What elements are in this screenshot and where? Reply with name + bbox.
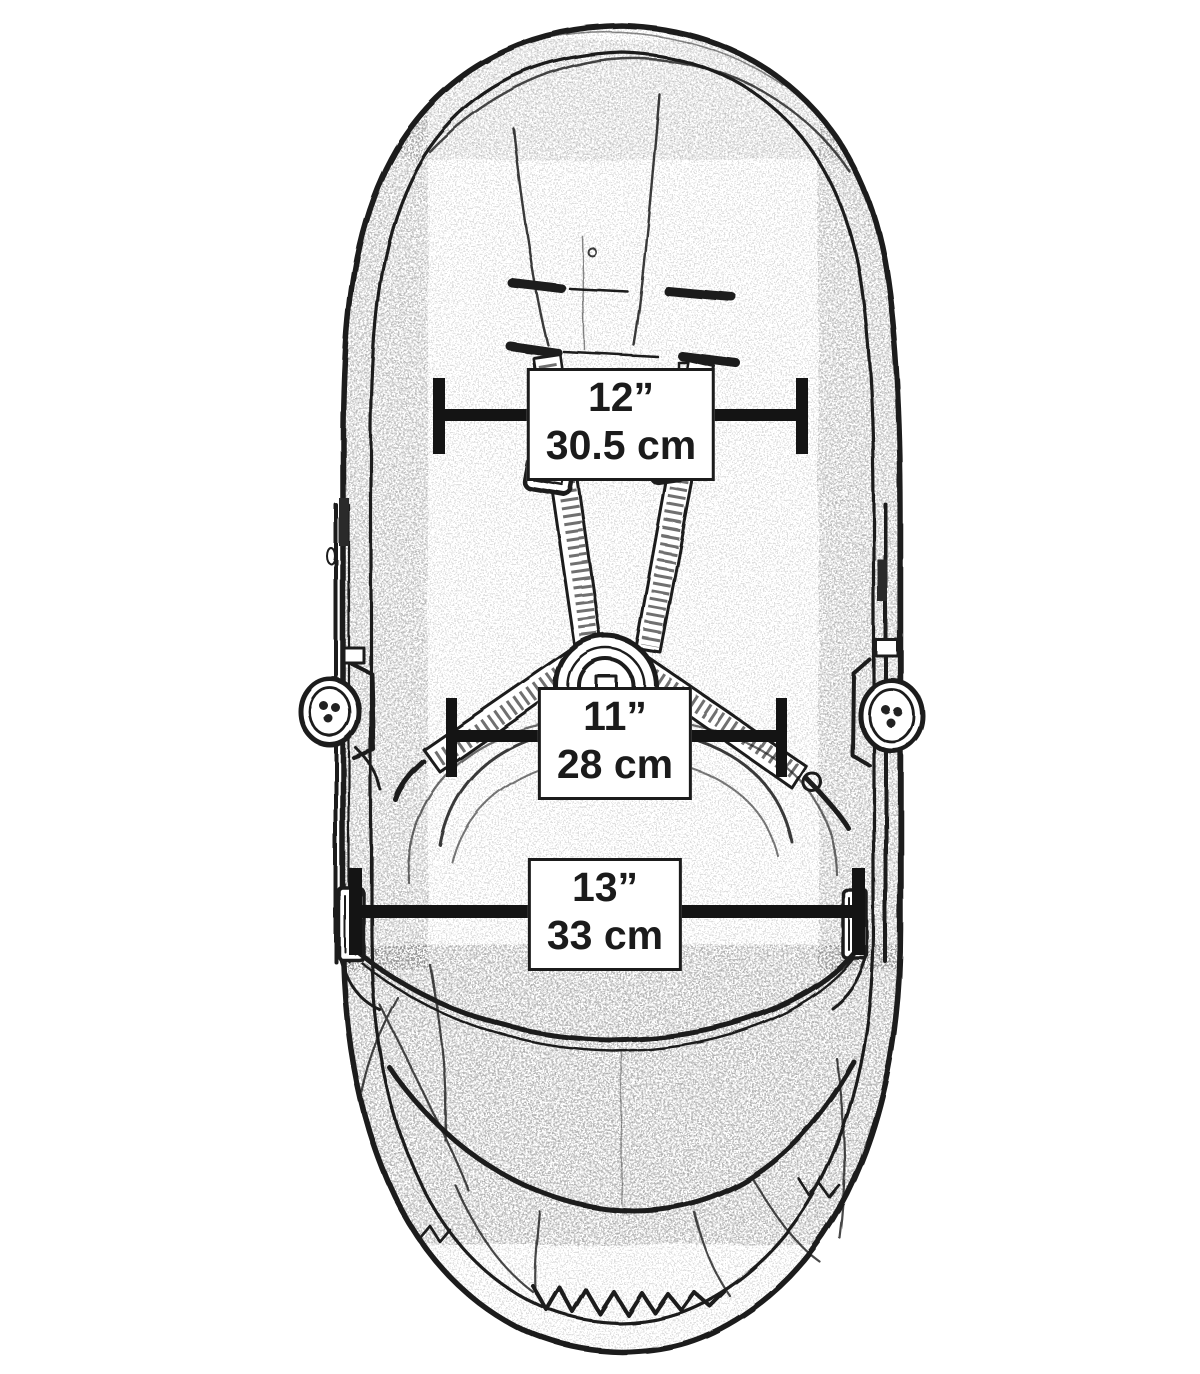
dimension-top-inches: 12”: [588, 374, 654, 422]
stroller-seat-dimension-diagram: 12” 30.5 cm 11” 28 cm 13” 33 cm: [0, 0, 1200, 1374]
dimension-middle-endcap-right: [776, 698, 787, 777]
dimension-bottom-label-box: 13” 33 cm: [528, 858, 682, 971]
dimension-bottom-inches: 13”: [572, 864, 638, 912]
dimension-bottom-endcap-right: [852, 868, 865, 955]
dimension-top-label-box: 12” 30.5 cm: [527, 368, 715, 481]
dimension-bottom-metric: 33 cm: [547, 912, 663, 960]
dimension-top-endcap-right: [796, 378, 808, 454]
dimension-middle-inches: 11”: [583, 693, 647, 741]
dimension-middle-label-box: 11” 28 cm: [538, 687, 692, 800]
dimension-top-metric: 30.5 cm: [546, 422, 696, 470]
dimension-middle-metric: 28 cm: [557, 741, 673, 789]
